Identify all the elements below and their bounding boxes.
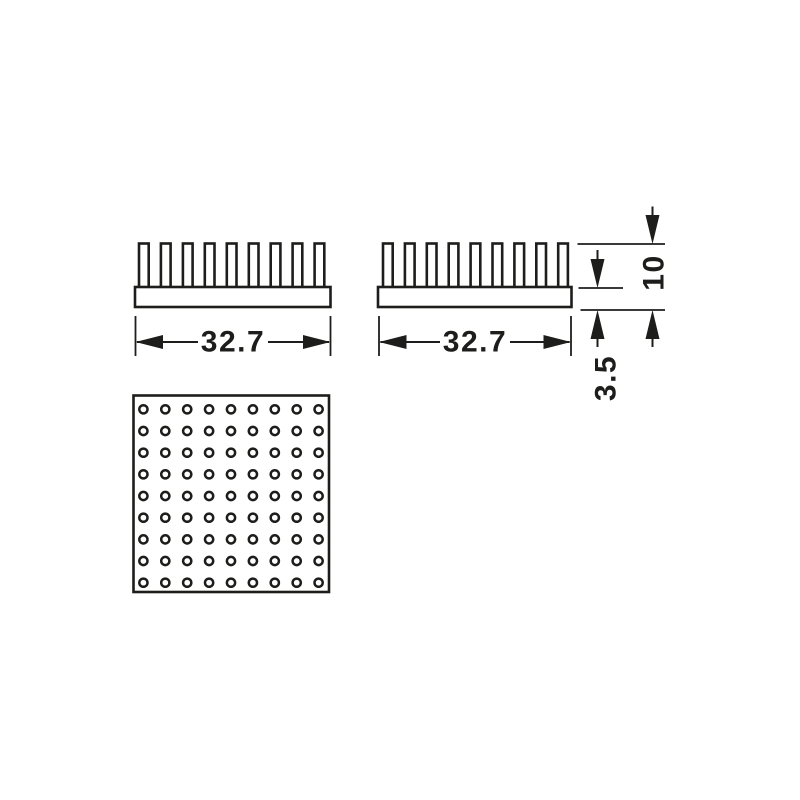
pin-hole <box>139 427 147 435</box>
arrowhead-up-icon <box>591 310 605 339</box>
fin-profile <box>405 244 415 290</box>
pin-hole <box>293 492 301 500</box>
pin-hole <box>205 492 213 500</box>
dimension-width-left: 32.7 <box>136 316 331 359</box>
pin-hole <box>161 535 169 543</box>
fin-profile <box>249 244 259 290</box>
heatsink-base-profile-left <box>135 287 331 307</box>
fin-profile <box>271 244 281 290</box>
side-view-right: 32.7 <box>378 244 572 359</box>
pin-hole <box>227 535 235 543</box>
pin-hole <box>293 405 301 413</box>
dimension-overall-height: 10 <box>638 207 671 348</box>
pin-hole <box>227 427 235 435</box>
top-view <box>134 396 330 593</box>
pin-hole <box>161 579 169 587</box>
fin-profile <box>161 244 171 290</box>
pin-hole <box>161 514 169 522</box>
pin-hole <box>249 557 257 565</box>
fin-profile <box>293 244 303 290</box>
fin-profile <box>514 244 524 290</box>
pin-hole <box>139 470 147 478</box>
pin-hole <box>205 470 213 478</box>
pin-hole <box>315 449 323 457</box>
pin-hole <box>205 579 213 587</box>
fin-profiles-right <box>383 244 568 290</box>
pin-hole <box>315 579 323 587</box>
pin-hole <box>183 405 191 413</box>
fin-profile <box>471 244 481 290</box>
pin-hole <box>271 514 279 522</box>
pin-hole <box>293 427 301 435</box>
pin-hole <box>293 470 301 478</box>
pin-hole <box>183 514 191 522</box>
pin-hole <box>271 449 279 457</box>
pin-hole <box>139 535 147 543</box>
pin-hole <box>271 470 279 478</box>
dimension-width-right: 32.7 <box>379 316 571 359</box>
pin-hole <box>183 557 191 565</box>
pin-hole <box>227 492 235 500</box>
pin-hole <box>293 557 301 565</box>
pin-hole <box>161 405 169 413</box>
pin-hole <box>227 449 235 457</box>
fin-profile <box>183 244 193 290</box>
dimension-label-base-thickness: 3.5 <box>590 355 623 401</box>
pin-hole <box>249 427 257 435</box>
pin-hole <box>161 557 169 565</box>
pin-hole <box>271 535 279 543</box>
pin-hole <box>271 427 279 435</box>
pin-hole <box>315 492 323 500</box>
fin-profile <box>227 244 237 290</box>
pin-hole <box>205 427 213 435</box>
pin-hole <box>205 449 213 457</box>
fin-profile <box>427 244 437 290</box>
pin-hole <box>315 470 323 478</box>
fin-profile <box>315 244 325 290</box>
dimension-label-width-right: 32.7 <box>443 326 507 359</box>
fin-profile <box>493 244 503 290</box>
dimension-label-overall-height: 10 <box>638 254 671 290</box>
pin-hole <box>249 492 257 500</box>
pin-hole <box>249 535 257 543</box>
pin-hole <box>249 514 257 522</box>
pin-hole <box>205 535 213 543</box>
pin-hole <box>271 557 279 565</box>
heatsink-base-profile-right <box>378 287 572 307</box>
pin-hole <box>205 405 213 413</box>
pin-hole <box>139 579 147 587</box>
pin-hole <box>205 557 213 565</box>
pin-hole <box>227 405 235 413</box>
arrowhead-down-icon <box>591 259 605 288</box>
vertical-dimensions: 10 3.5 <box>578 207 671 402</box>
fin-profile <box>139 244 149 290</box>
pin-hole <box>249 449 257 457</box>
pin-hole <box>161 470 169 478</box>
pin-hole <box>161 427 169 435</box>
pin-hole <box>139 449 147 457</box>
pin-hole <box>315 427 323 435</box>
pin-hole <box>249 470 257 478</box>
pin-hole <box>183 449 191 457</box>
arrowhead-right-icon <box>544 335 572 349</box>
fin-profile <box>449 244 459 290</box>
arrowhead-left-icon <box>136 335 164 349</box>
pin-hole <box>139 557 147 565</box>
fin-profile <box>383 244 393 290</box>
arrowhead-left-icon <box>379 335 407 349</box>
pin-hole <box>227 470 235 478</box>
fin-profiles-left <box>139 244 324 290</box>
arrowhead-down-icon <box>646 215 660 244</box>
pin-hole <box>315 557 323 565</box>
pin-hole <box>183 579 191 587</box>
arrowhead-right-icon <box>303 335 331 349</box>
pin-hole <box>183 470 191 478</box>
pin-hole <box>227 557 235 565</box>
pin-grid <box>139 405 322 587</box>
pin-hole <box>183 535 191 543</box>
drawing-page: 32.7 32.7 10 <box>0 0 800 800</box>
pin-hole <box>161 449 169 457</box>
arrowhead-up-icon <box>646 310 660 339</box>
pin-hole <box>293 449 301 457</box>
pin-hole <box>271 405 279 413</box>
pin-hole <box>205 514 213 522</box>
pin-hole <box>271 492 279 500</box>
pin-hole <box>161 492 169 500</box>
pin-hole <box>249 405 257 413</box>
pin-hole <box>293 579 301 587</box>
pin-hole <box>227 514 235 522</box>
pin-hole <box>139 492 147 500</box>
fin-profile <box>536 244 546 290</box>
pin-hole <box>315 535 323 543</box>
pin-hole <box>139 514 147 522</box>
pin-hole <box>315 514 323 522</box>
pin-hole <box>183 427 191 435</box>
pin-hole <box>227 579 235 587</box>
fin-profile <box>205 244 215 290</box>
pin-hole <box>249 579 257 587</box>
pin-hole <box>183 492 191 500</box>
fin-profile <box>558 244 568 290</box>
dimension-base-thickness: 3.5 <box>590 250 623 401</box>
dimension-label-width-left: 32.7 <box>201 326 265 359</box>
pin-hole <box>293 514 301 522</box>
pin-hole <box>271 579 279 587</box>
pin-hole <box>293 535 301 543</box>
side-view-left: 32.7 <box>135 244 331 359</box>
technical-drawing-canvas: 32.7 32.7 10 <box>0 0 800 800</box>
pin-hole <box>139 405 147 413</box>
pin-hole <box>315 405 323 413</box>
